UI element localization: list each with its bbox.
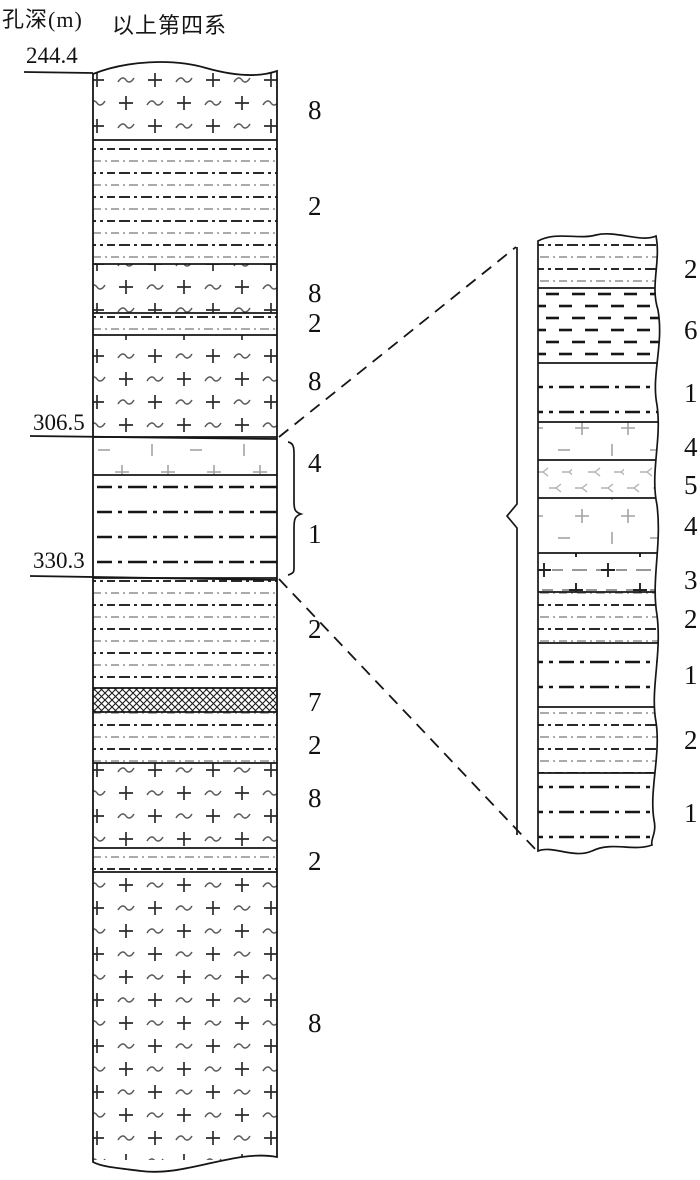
main-layer-code: 2 bbox=[308, 191, 322, 221]
depth-line bbox=[24, 72, 93, 73]
interval-brace bbox=[288, 442, 301, 575]
detail-layer-dashdot-fine bbox=[532, 707, 664, 773]
main-layer-code: 7 bbox=[308, 687, 322, 717]
depth-value: 306.5 bbox=[33, 410, 85, 435]
detail-layer-code: 4 bbox=[684, 511, 698, 541]
detail-layer-code: 1 bbox=[684, 798, 698, 828]
main-layer-dashdot-fine bbox=[87, 578, 285, 688]
main-layer-code: 2 bbox=[308, 614, 322, 644]
main-layer-plus-tilde bbox=[87, 872, 285, 1160]
zoom-dashed-line-upper bbox=[279, 247, 516, 437]
detail-layer-code: 3 bbox=[684, 565, 698, 595]
detail-span-brace bbox=[507, 247, 517, 835]
detail-layer-code: 2 bbox=[684, 254, 698, 284]
detail-layer-code: 2 bbox=[684, 604, 698, 634]
main-layer-code: 2 bbox=[308, 730, 322, 760]
detail-layer-code: 1 bbox=[684, 660, 698, 690]
depth-value: 244.4 bbox=[26, 43, 78, 68]
main-layer-code: 1 bbox=[308, 519, 322, 549]
detail-layer-dashdot-bold bbox=[532, 363, 664, 422]
detail-layer-sparse-plus bbox=[532, 498, 664, 553]
main-layer-dashdot-fine bbox=[87, 712, 285, 763]
main-column-layers bbox=[87, 72, 287, 1160]
detail-layer-code: 2 bbox=[684, 725, 698, 755]
main-layer-dashdot-fine bbox=[87, 140, 285, 264]
main-layer-code: 4 bbox=[308, 448, 322, 478]
main-layer-dashdot-fine bbox=[87, 848, 285, 872]
detail-layer-dashdot-bold bbox=[532, 643, 664, 707]
main-layer-dashdot-bold bbox=[87, 475, 285, 578]
borehole-log-diagram: 孔深(m) 以上第四系 bbox=[0, 0, 700, 1180]
main-layer-code: 8 bbox=[308, 1008, 322, 1038]
main-layer-code: 2 bbox=[308, 308, 322, 338]
main-layer-plus-tilde bbox=[87, 763, 285, 848]
detail-layer-dashdot-fine bbox=[532, 592, 664, 643]
main-layer-code: 8 bbox=[308, 783, 322, 813]
depth-value: 330.3 bbox=[33, 548, 85, 573]
main-layer-crosshatch bbox=[87, 688, 285, 712]
detail-layer-y-glyph bbox=[532, 460, 664, 498]
main-layer-plus-tilde bbox=[87, 264, 285, 313]
detail-layer-dashdot-fine bbox=[532, 238, 664, 288]
stratigraphic-columns-svg: 244.4306.5330.3 828284127282826145432121 bbox=[0, 0, 700, 1180]
main-layer-plus-tilde bbox=[87, 72, 285, 140]
detail-layer-code: 1 bbox=[684, 378, 698, 408]
detail-layer-dashes-bold bbox=[532, 288, 664, 363]
main-layer-sparse-plus bbox=[87, 437, 285, 475]
main-layer-code: 8 bbox=[308, 366, 322, 396]
detail-layer-dash-plus bbox=[532, 553, 664, 592]
detail-layer-code: 6 bbox=[684, 315, 698, 345]
main-layer-plus-tilde bbox=[87, 335, 285, 437]
detail-layer-sparse-plus bbox=[532, 422, 664, 460]
main-layer-code: 2 bbox=[308, 846, 322, 876]
detail-layer-code: 4 bbox=[684, 432, 698, 462]
main-layer-code: 8 bbox=[308, 95, 322, 125]
main-layer-code: 8 bbox=[308, 278, 322, 308]
detail-layer-code: 5 bbox=[684, 470, 698, 500]
detail-column-layers bbox=[532, 238, 666, 850]
detail-layer-dashdot-bold bbox=[532, 773, 664, 850]
main-layer-dashdot-fine bbox=[87, 313, 285, 335]
